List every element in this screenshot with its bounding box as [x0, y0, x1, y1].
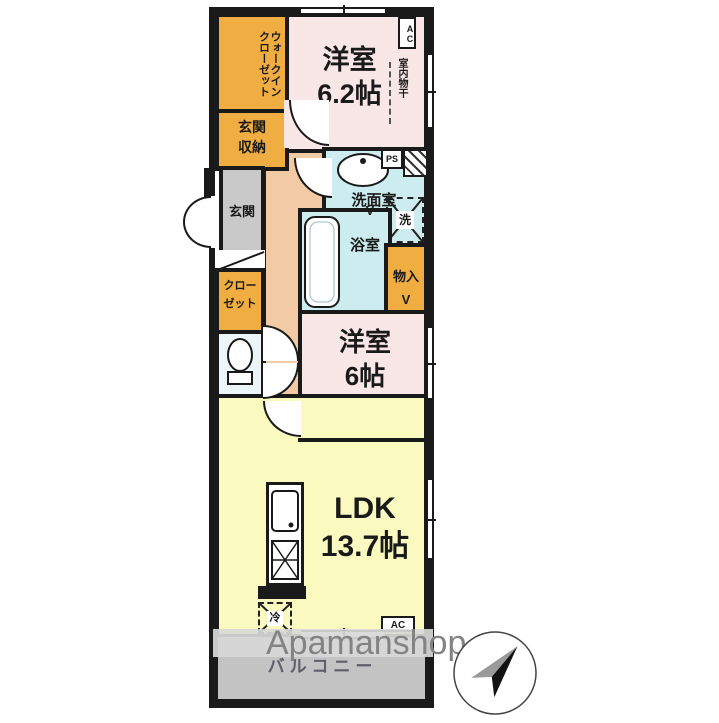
ldk-name: LDK — [305, 490, 425, 528]
bathroom-label: 浴室 — [340, 238, 390, 254]
window-right-bedroom-6 — [426, 328, 434, 398]
ac-unit-top-badge: AC — [398, 17, 416, 49]
bath-folding-door-mark: V — [363, 204, 377, 217]
window-tick — [424, 363, 436, 365]
storage-label: 物入 — [386, 270, 426, 284]
ac-top-text: AC — [405, 24, 415, 44]
closet-label: クロー ゼット — [218, 278, 262, 313]
wic-line1: ウォークイン — [269, 31, 281, 97]
bedroom-6-2-name: 洋室 — [297, 44, 402, 78]
indoor-drying-rail — [389, 62, 391, 124]
north-compass-icon — [450, 628, 540, 718]
entrance-storage-line2: 収納 — [219, 138, 285, 158]
floorplan-page: { "rooms": { "wic": { "l1": "ウォークイン", "l… — [0, 0, 719, 720]
kitchen-fixtures — [269, 485, 301, 583]
kitchen-counter — [266, 482, 304, 586]
walk-in-closet-label: ウォークイン クローゼット — [228, 20, 280, 108]
pipe-space-badge: PS — [381, 149, 403, 169]
balcony-label: バルコニー — [240, 658, 405, 676]
entrance-label: 玄関 — [220, 205, 264, 219]
closet-line2: ゼット — [218, 296, 262, 314]
entrance-door-leaf — [204, 168, 211, 198]
bathtub-icon — [304, 216, 340, 308]
entrance-storage-label: 玄関 収納 — [219, 118, 285, 157]
void-hatch — [403, 149, 428, 177]
ldk-size: 13.7帖 — [305, 528, 425, 566]
storage-folding-door-mark: V — [399, 293, 413, 306]
window-top-bedroom-6-2 — [301, 7, 385, 15]
window-tick — [343, 5, 345, 17]
entrance-door-swing — [183, 196, 211, 248]
closet-line1: クロー — [218, 278, 262, 296]
ldk-label: LDK 13.7帖 — [305, 490, 425, 565]
bedroom-6-size: 6帖 — [315, 360, 415, 394]
kitchen-counter-endcap — [258, 586, 306, 599]
entrance-step — [219, 250, 265, 270]
entrance-storage-line1: 玄関 — [219, 118, 285, 138]
bedroom6-ldk-wall — [298, 438, 428, 442]
indoor-drying-label: 室内物干 — [394, 58, 409, 132]
window-tick — [424, 91, 436, 93]
window-right-bedroom-6-2 — [426, 55, 434, 127]
bedroom-6-label: 洋室 6帖 — [315, 326, 415, 394]
wic-line2: クローゼット — [257, 31, 269, 97]
window-tick — [424, 519, 436, 521]
window-right-ldk — [426, 480, 434, 558]
entrance-step-line — [219, 250, 265, 270]
bedroom-6-name: 洋室 — [315, 326, 415, 360]
washing-machine-char: 洗 — [396, 211, 414, 229]
toilet-icon — [226, 338, 254, 388]
